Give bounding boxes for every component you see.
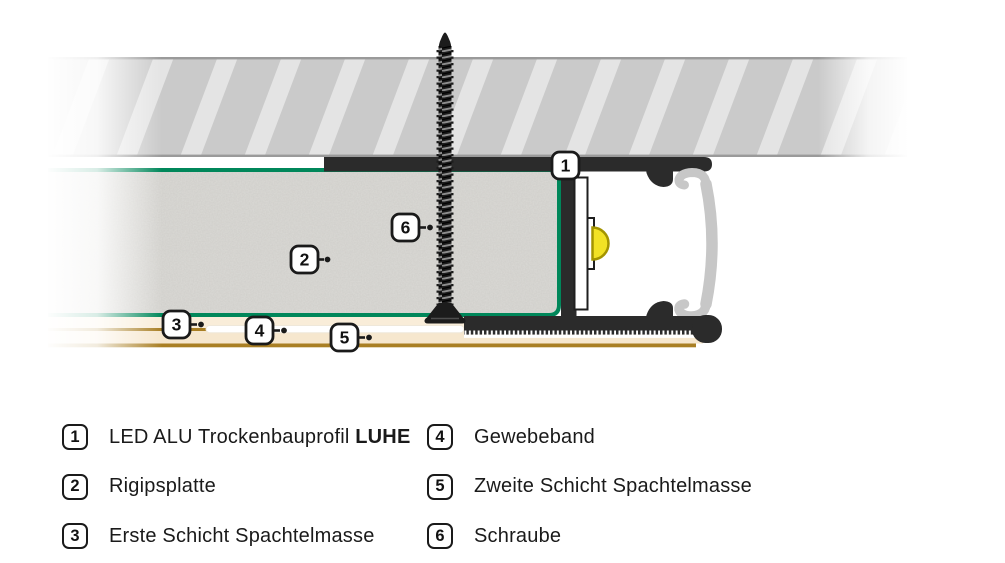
ceiling-top-border [48, 57, 907, 59]
legend-number-badge-5: 5 [427, 474, 453, 500]
callout-3-number: 3 [172, 315, 182, 335]
legend-item-2: 2 Rigipsplatte [62, 474, 411, 500]
diffuser-front-band [706, 184, 712, 304]
callout-3-dot [198, 322, 204, 328]
callout-5-dot [366, 335, 372, 341]
legend-number-badge-1: 1 [62, 424, 88, 450]
installation-cross-section-figure: 1 2 3 4 [0, 0, 1005, 563]
legend-label-6: Schraube [474, 525, 561, 548]
diffuser-cover [679, 173, 712, 305]
cross-section-diagram: 1 2 3 4 [0, 0, 1005, 400]
left-edge-fade [44, 50, 162, 355]
diffuser-top-hook [679, 173, 706, 188]
callout-4-dot [281, 328, 287, 334]
led-carrier-plate [575, 178, 588, 310]
profile-top-tooth [646, 169, 673, 187]
legend-label-4: Gewebeband [474, 426, 595, 449]
callout-2-number: 2 [300, 250, 310, 270]
legend-number-badge-3: 3 [62, 523, 88, 549]
legend-number-badge-4: 4 [427, 424, 453, 450]
legend-item-5: 5 Zweite Schicht Spachtelmasse [427, 474, 752, 500]
callout-1: 1 [552, 152, 579, 179]
profile-bottom-tooth [646, 301, 673, 318]
legend-column-1: 1 LED ALU Trockenbauprofil LUHE 2 Rigips… [62, 424, 411, 549]
legend: 1 LED ALU Trockenbauprofil LUHE 2 Rigips… [0, 424, 1005, 563]
profile-end-cap [692, 315, 722, 343]
right-edge-fade [818, 50, 910, 162]
legend-item-1: 1 LED ALU Trockenbauprofil LUHE [62, 424, 411, 450]
tape-under-flange [464, 335, 695, 338]
legend-number-badge-6: 6 [427, 523, 453, 549]
legend-number-badge-2: 2 [62, 474, 88, 500]
callout-6-dot [427, 225, 433, 231]
legend-label-1-bold: LUHE [355, 426, 410, 448]
callout-6-number: 6 [401, 218, 411, 238]
legend-label-1: LED ALU Trockenbauprofil LUHE [109, 426, 411, 449]
profile-bottom-flange [464, 316, 708, 331]
serration-teeth [464, 331, 695, 335]
led-dome [593, 228, 609, 260]
ceiling-bottom-border [48, 155, 907, 157]
legend-label-1-text: LED ALU Trockenbauprofil [109, 426, 355, 448]
legend-label-2: Rigipsplatte [109, 475, 216, 498]
callout-5-number: 5 [340, 328, 350, 348]
screw-shaft [439, 46, 452, 308]
legend-item-3: 3 Erste Schicht Spachtelmasse [62, 523, 411, 549]
legend-item-4: 4 Gewebeband [427, 424, 752, 450]
legend-label-5: Zweite Schicht Spachtelmasse [474, 475, 752, 498]
callout-1-number: 1 [561, 156, 571, 176]
ceiling-hatch [48, 46, 936, 168]
callout-2-dot [325, 257, 331, 263]
legend-label-3: Erste Schicht Spachtelmasse [109, 525, 375, 548]
callout-4-number: 4 [255, 321, 265, 341]
legend-column-2: 4 Gewebeband 5 Zweite Schicht Spachtelma… [427, 424, 752, 549]
legend-item-6: 6 Schraube [427, 523, 752, 549]
led-module [575, 178, 609, 310]
